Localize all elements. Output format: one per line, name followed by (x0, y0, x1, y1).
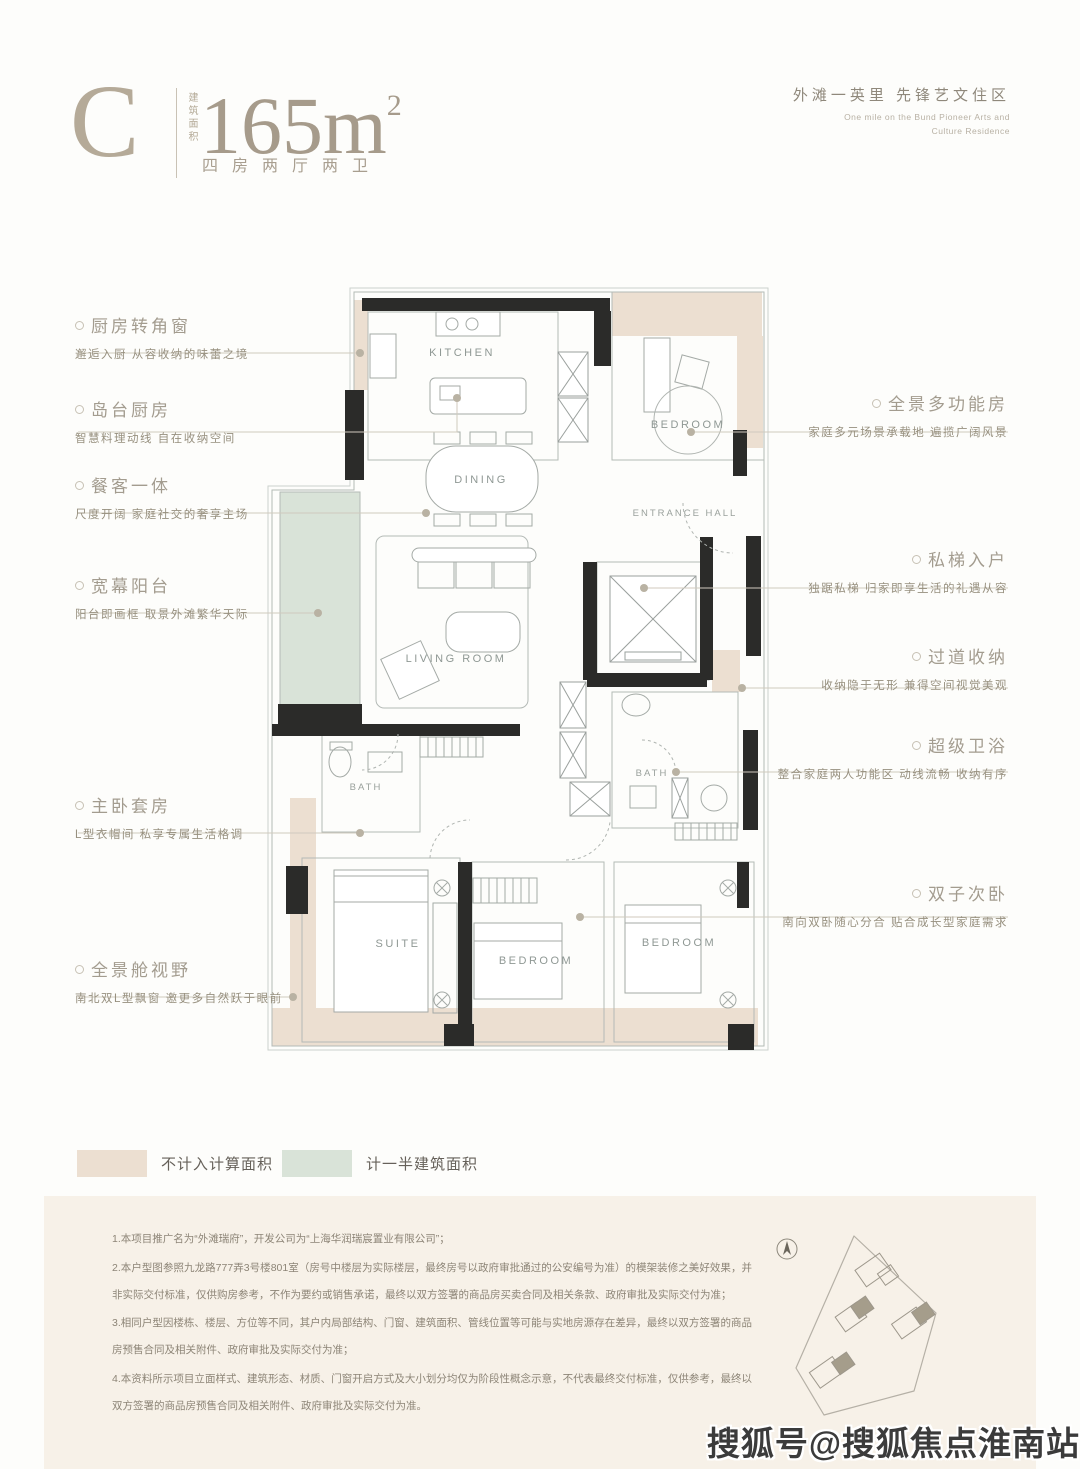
disclaimer-paragraph: 4.本资料所示项目立面样式、建筑形态、材质、门窗开启方式及大小划分均仅为阶段性概… (112, 1366, 752, 1420)
callout-private-elevator: 私梯入户 独踞私梯 归家即享生活的礼遇从容 (808, 546, 1008, 596)
room-label-living-room: LIVING ROOM (406, 653, 507, 665)
coffee-table (446, 612, 520, 652)
header-divider (176, 88, 177, 178)
area-exponent: 2 (387, 89, 402, 122)
callout-kitchen-corner-window: 厨房转角窗 邂逅入厨 从容收纳的味蕾之境 (75, 312, 249, 362)
room-label-dining: DINING (454, 474, 508, 486)
project-slogan-cn: 外滩一英里 先锋艺文住区 (793, 84, 1010, 105)
sink (630, 786, 656, 808)
room-label-bath-left: BATH (350, 782, 383, 793)
project-slogan-en: One mile on the Bund Pioneer Arts and Cu… (844, 110, 1010, 138)
legend-label: 计一半建筑面积 (366, 1153, 478, 1174)
callout-twin-bedrooms: 双子次卧 南向双卧随心分合 贴合成长型家庭需求 (782, 880, 1008, 930)
callout-dining-living: 餐客一体 尺度开阔 家庭社交的奢享主场 (75, 472, 249, 522)
callout-desc: L型衣帽间 私享专属生活格调 (75, 826, 244, 842)
callout-marker-icon (75, 581, 84, 590)
desk (644, 338, 670, 412)
room-label-kitchen: KITCHEN (429, 347, 495, 359)
area-prefix-vertical: 建筑面积 (184, 92, 199, 144)
callout-marker-icon (872, 399, 881, 408)
callout-desc: 南北双L型飘窗 邀更多自然跃于眼前 (75, 990, 283, 1006)
callout-title: 餐客一体 (91, 477, 171, 496)
callout-marker-icon (75, 481, 84, 490)
shower (701, 785, 727, 811)
callout-desc: 南向双卧随心分合 贴合成长型家庭需求 (782, 914, 1008, 930)
legend-swatch-beige (77, 1150, 147, 1177)
callout-desc: 家庭多元场景承载地 遍揽广阔风景 (808, 424, 1008, 440)
room-label-bedroom-middle: BEDROOM (499, 955, 573, 967)
callout-marker-icon (912, 652, 921, 661)
north-compass-icon (777, 1239, 797, 1259)
legend-label: 不计入计算面积 (161, 1153, 273, 1174)
callout-title: 私梯入户 (928, 551, 1008, 570)
disclaimer-paragraph: 1.本项目推广名为“外滩瑞府”，开发公司为“上海华润瑞宸置业有限公司”； (112, 1226, 752, 1253)
callout-title: 双子次卧 (928, 885, 1008, 904)
callout-title: 厨房转角窗 (91, 317, 191, 336)
callout-marker-icon (912, 555, 921, 564)
kitchen-counter (370, 334, 396, 378)
callout-desc: 收纳隐于无形 兼得空间视觉美观 (821, 677, 1008, 693)
callout-desc: 阳台即画框 取景外滩繁华天际 (75, 606, 249, 622)
callout-marker-icon (75, 801, 84, 810)
room-label-bedroom-right: BEDROOM (642, 937, 716, 949)
callout-title: 主卧套房 (91, 797, 171, 816)
callout-island-kitchen: 岛台厨房 智慧料理动线 自在收纳空间 (75, 396, 236, 446)
callout-title: 宽幕阳台 (91, 577, 171, 596)
legend-swatch-green (282, 1150, 352, 1177)
callout-desc: 智慧料理动线 自在收纳空间 (75, 430, 236, 446)
callout-master-suite: 主卧套房 L型衣帽间 私享专属生活格调 (75, 792, 244, 842)
toilet (329, 747, 351, 777)
site-plan-map (766, 1218, 996, 1438)
callout-marker-icon (75, 965, 84, 974)
kitchen-island (430, 378, 526, 414)
callout-marker-icon (912, 741, 921, 750)
callout-wide-balcony: 宽幕阳台 阳台即画框 取景外滩繁华天际 (75, 572, 249, 622)
armchair (381, 641, 439, 699)
callout-panorama-view: 全景舱视野 南北双L型飘窗 邀更多自然跃于眼前 (75, 956, 283, 1006)
callout-title: 超级卫浴 (928, 737, 1008, 756)
callout-desc: 尺度开阔 家庭社交的奢享主场 (75, 506, 249, 522)
callout-marker-icon (75, 405, 84, 414)
disclaimer-text: 1.本项目推广名为“外滩瑞府”，开发公司为“上海华润瑞宸置业有限公司”； 2.本… (112, 1226, 752, 1421)
callout-desc: 整合家庭两人功能区 动线流畅 收纳有序 (778, 766, 1008, 782)
disclaimer-paragraph: 3.相同户型因楼栋、楼层、方位等不同，其户内局部结构、门窗、建筑面积、管线位置等… (112, 1310, 752, 1364)
layout-spec: 四房两厅两卫 (202, 152, 382, 176)
legend-item-excluded-area: 不计入计算面积 (77, 1150, 273, 1177)
slogan-en-line2: Culture Residence (844, 124, 1010, 138)
callout-title: 全景多功能房 (888, 395, 1008, 414)
callout-corridor-storage: 过道收纳 收纳隐于无形 兼得空间视觉美观 (821, 643, 1008, 693)
watermark-text: 搜狐号@搜狐焦点淮南站 (707, 1417, 1080, 1465)
floor-plan: KITCHEN DINING LIVING ROOM BEDROOM ENTRA… (0, 240, 1080, 1150)
callout-super-bathroom: 超级卫浴 整合家庭两人功能区 动线流畅 收纳有序 (778, 732, 1008, 782)
callout-title: 全景舱视野 (91, 961, 191, 980)
callout-multifunction-room: 全景多功能房 家庭多元场景承载地 遍揽广阔风景 (808, 390, 1008, 440)
room-label-bath-right: BATH (636, 768, 669, 779)
callout-desc: 独踞私梯 归家即享生活的礼遇从容 (808, 580, 1008, 596)
room-label-suite: SUITE (376, 938, 421, 950)
disclaimer-paragraph: 2.本户型图参照九龙路777弄3号楼801室（房号中楼层为实际楼层，最终房号以政… (112, 1255, 752, 1309)
callout-title: 岛台厨房 (91, 401, 171, 420)
callout-marker-icon (75, 321, 84, 330)
callout-marker-icon (912, 889, 921, 898)
legend-item-half-area: 计一半建筑面积 (282, 1150, 478, 1177)
room-label-bedroom-top: BEDROOM (651, 419, 725, 431)
callout-desc: 邂逅入厨 从容收纳的味蕾之境 (75, 346, 249, 362)
room-label-entrance-hall: ENTRANCE HALL (633, 508, 738, 519)
site-buildings (809, 1253, 935, 1388)
callout-title: 过道收纳 (928, 648, 1008, 667)
toilet (622, 694, 650, 716)
slogan-en-line1: One mile on the Bund Pioneer Arts and (844, 110, 1010, 124)
unit-type-letter: C (70, 70, 139, 174)
sofa-back (412, 548, 536, 562)
floorplan-flyer-page: C 建筑面积 165m2 四房两厅两卫 外滩一英里 先锋艺文住区 One mil… (0, 0, 1080, 1469)
right-bed (625, 905, 701, 993)
